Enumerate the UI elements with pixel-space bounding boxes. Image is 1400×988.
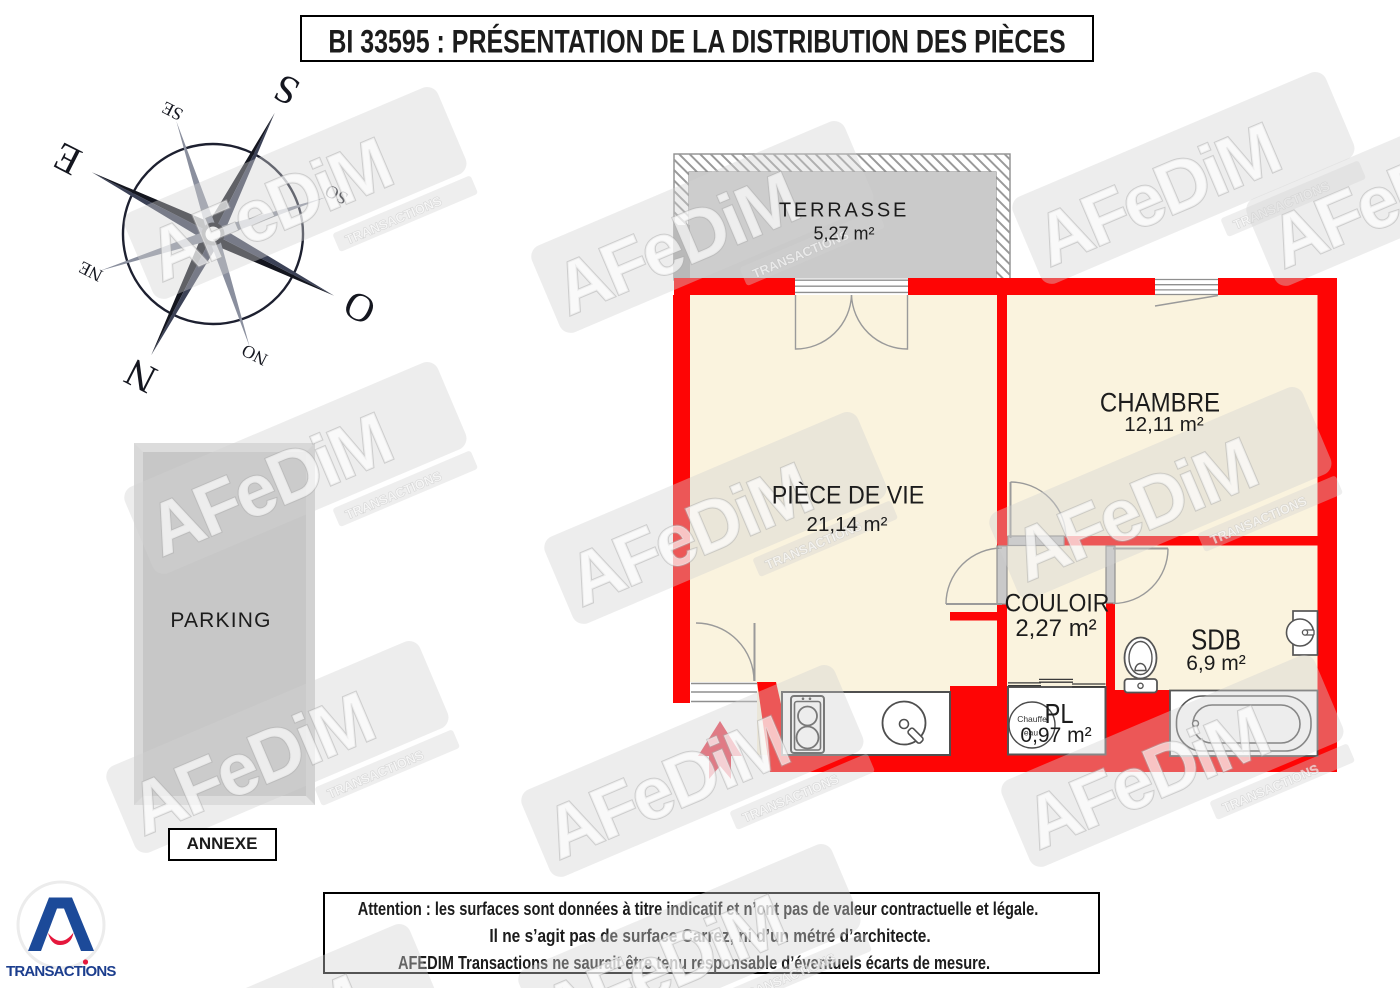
svg-text:SO: SO — [321, 181, 351, 209]
svg-text:N: N — [118, 350, 164, 403]
svg-text:NE: NE — [75, 257, 105, 286]
svg-text:SE: SE — [158, 97, 186, 124]
svg-text:Chauffe: Chauffe — [1017, 714, 1047, 724]
svg-text:S: S — [266, 65, 306, 115]
svg-text:NO: NO — [238, 340, 270, 370]
svg-text:TRANSACTIONS: TRANSACTIONS — [6, 963, 116, 980]
svg-text:O: O — [336, 281, 382, 334]
svg-text:E: E — [46, 134, 88, 185]
